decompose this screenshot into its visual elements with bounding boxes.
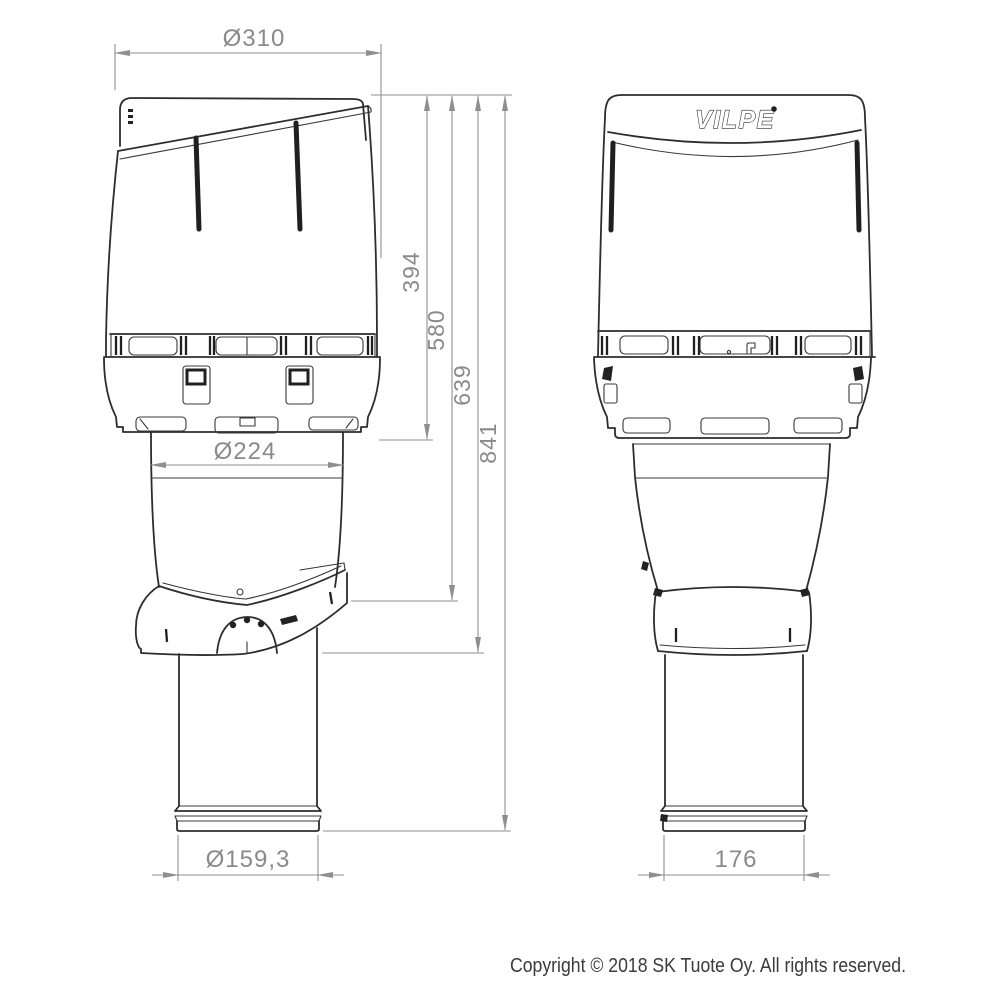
dim-580-label: 580 [423, 309, 449, 350]
hood-base-front [594, 358, 871, 438]
dim-224: Ø224 [151, 438, 343, 465]
hood-base [104, 358, 380, 433]
dim-224-label: Ø224 [214, 438, 277, 465]
dim-639-label: 639 [449, 364, 475, 405]
brand-logo-text: VILPE [695, 106, 775, 134]
roof-flashing [136, 563, 347, 655]
vent-band-front [594, 331, 875, 357]
vent-dividers [116, 336, 372, 355]
registered-mark-dot [771, 106, 777, 112]
hood-front: VILPE [598, 95, 872, 356]
dim-heights: 394 580 639 841 [322, 95, 512, 831]
hood-back-panel [120, 98, 366, 146]
drawing-page: VILPE [0, 0, 1000, 1000]
dim-159-label: Ø159,3 [206, 846, 291, 873]
seal-collar [653, 587, 811, 655]
vent-band [104, 334, 380, 357]
vent-dividers-front [602, 336, 861, 355]
brand-logo: VILPE [695, 106, 777, 134]
upper-pipe-front [633, 444, 830, 591]
dim-841-label: 841 [475, 422, 501, 463]
hood-shell [106, 106, 377, 356]
dim-159: Ø159,3 [152, 835, 344, 881]
dim-310-label: Ø310 [223, 25, 286, 52]
dim-176: 176 [638, 835, 830, 881]
dim-394-label: 394 [398, 251, 424, 292]
lower-pipe-front [660, 655, 807, 831]
dim-310: Ø310 [115, 25, 381, 258]
technical-drawing: VILPE [0, 0, 1000, 1000]
dimensions: Ø310 Ø224 Ø159,3 176 [115, 25, 830, 881]
dim-176-label: 176 [714, 846, 757, 873]
lower-pipe [175, 628, 321, 831]
copyright-text: Copyright © 2018 SK Tuote Oy. All rights… [510, 955, 906, 977]
right-view: VILPE [594, 95, 875, 831]
